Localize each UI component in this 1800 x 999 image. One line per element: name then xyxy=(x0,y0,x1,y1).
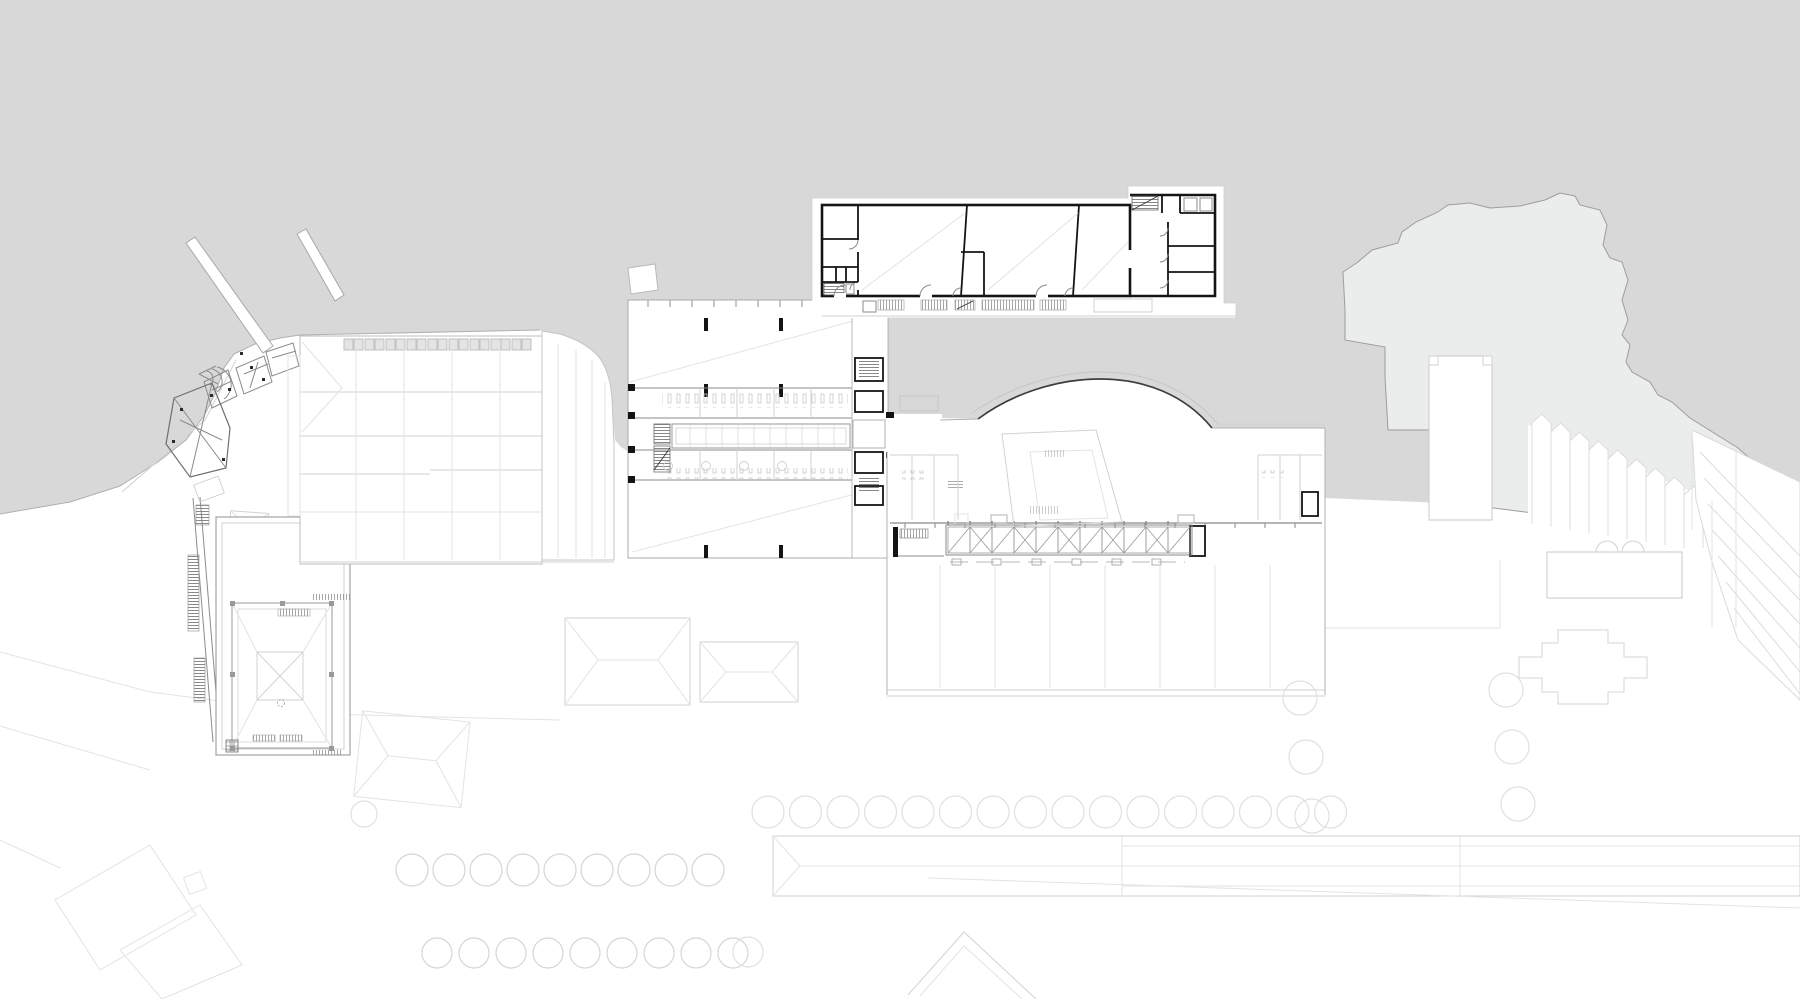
skylight xyxy=(449,339,458,350)
right-tower-roof xyxy=(1429,356,1492,520)
skylight xyxy=(512,339,521,350)
wall-tick-band-2 xyxy=(313,750,341,755)
window-band xyxy=(1040,300,1066,310)
dome-roof-terrace xyxy=(900,396,938,411)
sawtooth-strip xyxy=(1589,441,1608,533)
desk-row-south xyxy=(662,468,848,479)
courtyard-hatch-strip-1 xyxy=(278,609,310,616)
skylight xyxy=(365,339,374,350)
skylight xyxy=(375,339,384,350)
window-band xyxy=(982,300,1034,310)
site-plan-drawing xyxy=(0,0,1800,999)
sawtooth-strip xyxy=(1646,468,1665,542)
skylight xyxy=(386,339,395,350)
auditorium-building xyxy=(886,372,1325,696)
skylight xyxy=(501,339,510,350)
courtyard-hatch-strip-3 xyxy=(280,735,302,741)
courtyard-hatch-strip-2 xyxy=(253,735,275,741)
sawtooth-strip xyxy=(1627,459,1646,539)
sawtooth-strip xyxy=(1532,414,1551,524)
sawtooth-strip xyxy=(1665,477,1684,545)
upper-gallery-wing xyxy=(812,186,1236,318)
skylight xyxy=(407,339,416,350)
skylight xyxy=(459,339,468,350)
site-plan-canvas xyxy=(0,0,1800,999)
skylight xyxy=(428,339,437,350)
gallery-building-rounded xyxy=(542,331,614,560)
skylight xyxy=(354,339,363,350)
desk-row-north xyxy=(662,392,848,408)
skylight xyxy=(491,339,500,350)
pier-west xyxy=(186,237,273,353)
skylight xyxy=(480,339,489,350)
service-tower-east xyxy=(852,300,888,558)
skylight xyxy=(417,339,426,350)
pier-east xyxy=(297,229,344,301)
reflecting-pool xyxy=(1547,552,1682,598)
skylight xyxy=(438,339,447,350)
window-band xyxy=(878,300,904,310)
sawtooth-strip xyxy=(1551,423,1570,527)
skylight xyxy=(344,339,353,350)
sawtooth-strip xyxy=(1608,450,1627,536)
stair-core-west xyxy=(654,424,670,472)
skylight xyxy=(470,339,479,350)
sawtooth-strip xyxy=(1570,432,1589,530)
window-band xyxy=(921,300,947,310)
wall-tick-band-1 xyxy=(313,594,350,600)
studio-entry-canopy xyxy=(628,264,658,294)
skylight xyxy=(522,339,531,350)
